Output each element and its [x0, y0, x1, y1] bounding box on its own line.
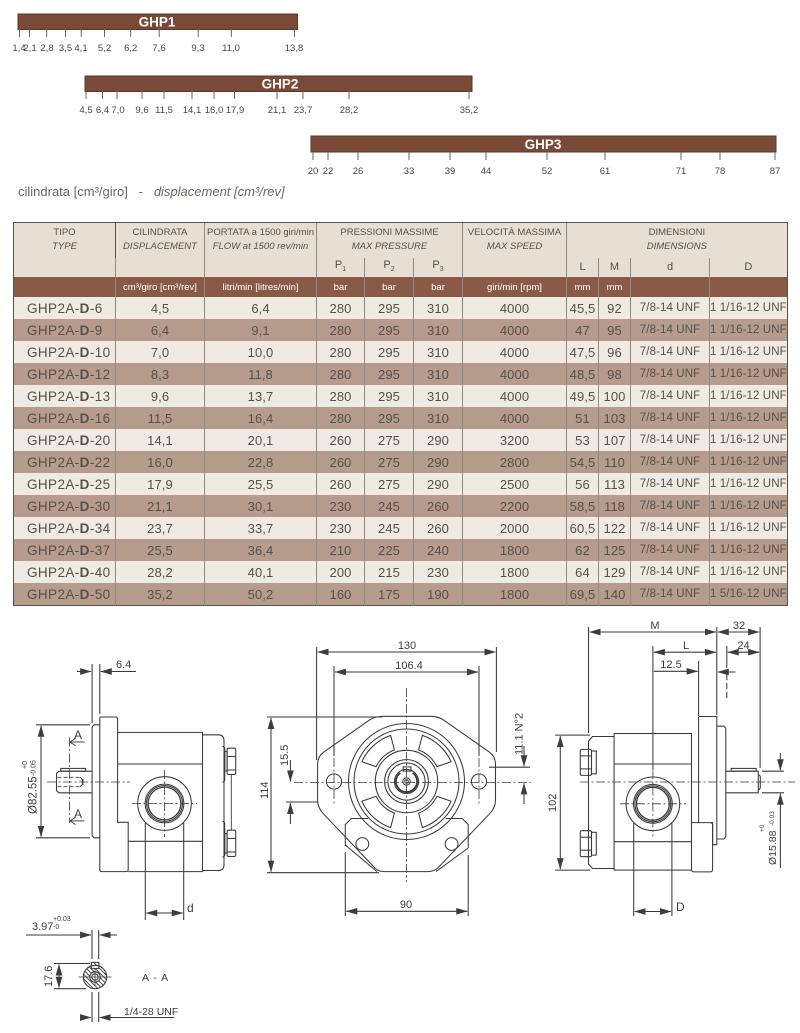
svg-text:87: 87	[770, 166, 781, 177]
svg-text:2,1: 2,1	[23, 43, 36, 54]
svg-text:11.1 N°2: 11.1 N°2	[514, 713, 526, 755]
svg-text:9,6: 9,6	[135, 105, 148, 116]
svg-text:7,6: 7,6	[152, 43, 165, 54]
svg-text:61: 61	[600, 166, 611, 177]
svg-text:24: 24	[737, 640, 749, 652]
svg-text:78: 78	[715, 166, 726, 177]
svg-text:-0: -0	[53, 924, 59, 931]
svg-text:102: 102	[547, 794, 559, 812]
svg-text:5,2: 5,2	[98, 43, 111, 54]
svg-text:D: D	[676, 900, 685, 914]
svg-text:22: 22	[323, 166, 334, 177]
svg-text:11,5: 11,5	[155, 105, 173, 116]
svg-text:GHP2: GHP2	[262, 77, 299, 92]
svg-text:+0: +0	[759, 824, 766, 832]
svg-text:+0.03: +0.03	[53, 916, 71, 923]
svg-text:17.6: 17.6	[43, 966, 55, 987]
svg-text:11,0: 11,0	[222, 43, 240, 54]
svg-text:4,1: 4,1	[74, 43, 87, 54]
svg-text:20: 20	[308, 166, 319, 177]
svg-text:+0: +0	[22, 761, 29, 769]
svg-text:3,5: 3,5	[59, 43, 72, 54]
svg-text:L: L	[683, 640, 689, 652]
svg-text:2,8: 2,8	[40, 43, 53, 54]
svg-text:106.4: 106.4	[395, 660, 423, 672]
svg-text:130: 130	[398, 640, 416, 652]
svg-text:23,7: 23,7	[294, 105, 313, 116]
svg-text:16,0: 16,0	[205, 105, 224, 116]
svg-text:33: 33	[404, 166, 415, 177]
svg-text:cilindrata [cm³/giro] - di: cilindrata [cm³/giro] - displacement [cm…	[18, 184, 285, 199]
svg-text:Ø82.55: Ø82.55	[28, 776, 40, 814]
svg-text:A - A: A - A	[142, 972, 169, 984]
svg-text:GHP1: GHP1	[139, 15, 176, 30]
svg-text:6,4: 6,4	[96, 105, 109, 116]
svg-text:-0.03: -0.03	[769, 811, 776, 826]
svg-text:44: 44	[481, 166, 492, 177]
svg-text:9,3: 9,3	[191, 43, 204, 54]
svg-text:6.4: 6.4	[116, 659, 131, 671]
svg-text:21,1: 21,1	[268, 105, 287, 116]
svg-text:7,0: 7,0	[111, 105, 124, 116]
svg-text:1/4-28 UNF: 1/4-28 UNF	[124, 1006, 178, 1018]
svg-text:-0.05: -0.05	[31, 760, 38, 776]
svg-text:A: A	[74, 807, 82, 821]
svg-text:17,9: 17,9	[226, 105, 245, 116]
svg-text:12.5: 12.5	[660, 659, 681, 671]
svg-text:4,5: 4,5	[79, 105, 92, 116]
svg-text:15.5: 15.5	[279, 745, 291, 766]
svg-text:52: 52	[542, 166, 553, 177]
svg-text:M: M	[650, 620, 659, 632]
svg-text:28,2: 28,2	[340, 105, 359, 116]
svg-text:A: A	[74, 728, 82, 742]
svg-text:35,2: 35,2	[460, 105, 479, 116]
svg-text:39: 39	[445, 166, 456, 177]
svg-text:GHP3: GHP3	[525, 137, 562, 152]
svg-text:26: 26	[353, 166, 364, 177]
svg-text:90: 90	[400, 899, 412, 911]
svg-text:71: 71	[676, 166, 687, 177]
svg-text:Ø15.88: Ø15.88	[767, 830, 779, 865]
svg-text:d: d	[187, 901, 194, 915]
svg-text:14,1: 14,1	[183, 105, 202, 116]
svg-text:13,8: 13,8	[285, 43, 304, 54]
svg-text:114: 114	[259, 781, 271, 799]
svg-text:3.97: 3.97	[32, 921, 53, 933]
svg-text:32: 32	[733, 620, 745, 632]
svg-text:6,2: 6,2	[124, 43, 137, 54]
